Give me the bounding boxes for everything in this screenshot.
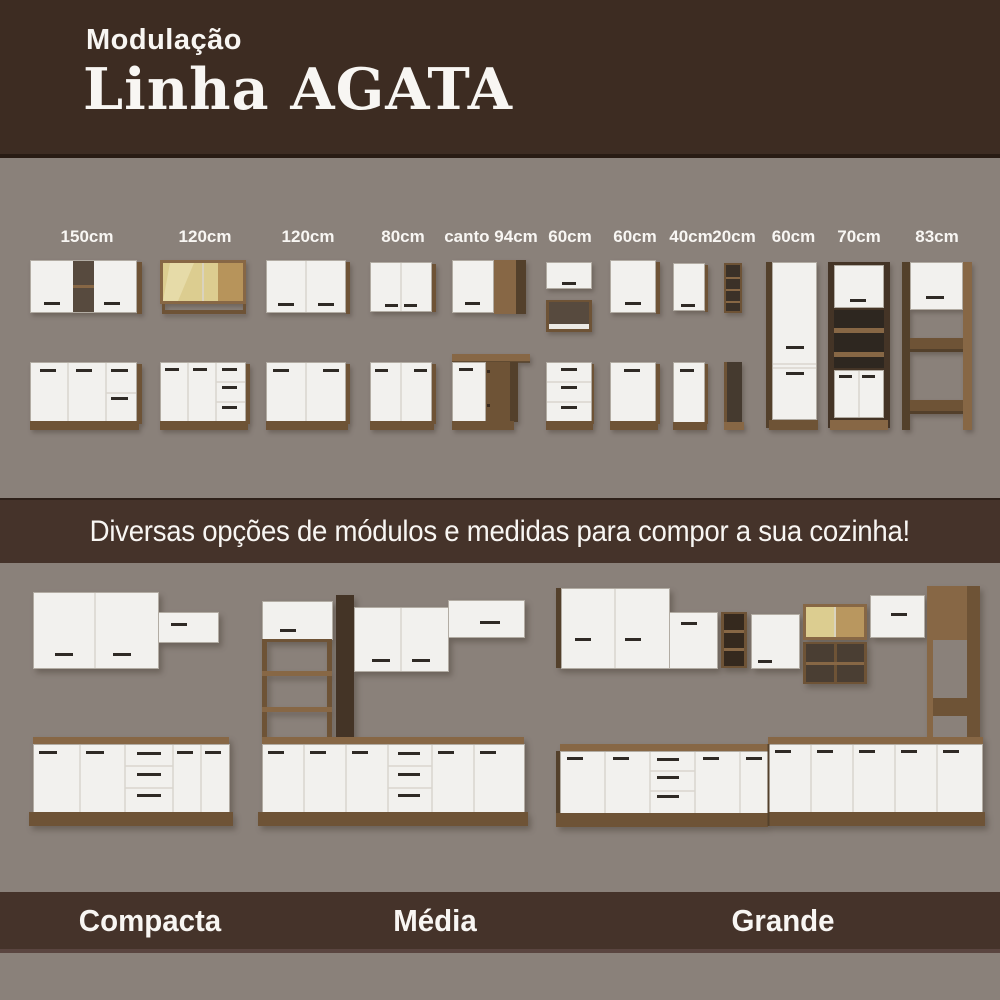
module-size-label: 20cm: [712, 222, 755, 252]
kitchen-compacta-illustration: [25, 585, 240, 840]
promo-page: Modulação Linha AGATA 150cm 120cm: [0, 0, 1000, 1000]
module-120cm-illustration: [266, 258, 350, 433]
module-60cm-niche-illustration: [546, 258, 594, 433]
tagline-band: Diversas opções de módulos e medidas par…: [0, 498, 1000, 563]
module-size-label: 60cm: [772, 222, 815, 252]
kitchen-media: [256, 585, 538, 840]
module-size-label: 150cm: [61, 222, 114, 252]
tagline-text: Diversas opções de módulos e medidas par…: [90, 515, 910, 549]
module-80cm-illustration: [370, 258, 436, 433]
module-60cm-niche: 60cm: [546, 222, 594, 433]
module-150cm-illustration: [30, 258, 144, 433]
module-60cm-tall-illustration: [766, 258, 821, 433]
module-size-label: canto 94cm: [444, 222, 538, 252]
header-kicker: Modulação: [86, 24, 242, 57]
module-size-label: 40cm: [669, 222, 712, 252]
kitchen-compacta: [25, 585, 240, 840]
module-20cm: 20cm: [724, 222, 744, 433]
module-60cm-door: 60cm: [610, 222, 660, 433]
header-banner: Modulação Linha AGATA: [0, 0, 1000, 158]
page-title: Linha AGATA: [83, 56, 513, 123]
kitchen-media-illustration: [256, 585, 538, 840]
module-size-label: 80cm: [381, 222, 424, 252]
module-20cm-illustration: [724, 258, 744, 433]
module-80cm: 80cm: [370, 222, 436, 433]
module-150cm: 150cm: [30, 222, 144, 433]
module-70cm-tall-illustration: [828, 258, 890, 433]
module-size-label: 120cm: [282, 222, 335, 252]
module-40cm: 40cm: [673, 222, 709, 433]
module-size-label: 83cm: [915, 222, 958, 252]
kitchen-grande-illustration: [553, 578, 987, 840]
module-canto-94cm-illustration: [452, 258, 530, 433]
module-60cm-tall: 60cm: [766, 222, 821, 433]
kitchen-label-compacta: Compacta: [79, 903, 221, 939]
module-83cm-tall-illustration: [902, 258, 972, 433]
module-70cm-tall: 70cm: [828, 222, 890, 433]
module-canto-94cm: canto 94cm: [452, 222, 530, 433]
kitchen-names-band: Compacta Média Grande: [0, 892, 1000, 953]
module-size-label: 60cm: [548, 222, 591, 252]
module-120cm: 120cm: [266, 222, 350, 433]
kitchen-label-grande: Grande: [731, 903, 834, 939]
module-120cm-glass: 120cm: [160, 222, 250, 433]
module-size-label: 60cm: [613, 222, 656, 252]
module-83cm-tall: 83cm: [902, 222, 972, 433]
module-40cm-illustration: [673, 258, 709, 433]
module-120cm-glass-illustration: [160, 258, 250, 433]
kitchen-grande: [553, 578, 987, 840]
kitchen-label-media: Média: [393, 903, 476, 939]
module-size-label: 120cm: [179, 222, 232, 252]
module-size-label: 70cm: [837, 222, 880, 252]
module-60cm-door-illustration: [610, 258, 660, 433]
